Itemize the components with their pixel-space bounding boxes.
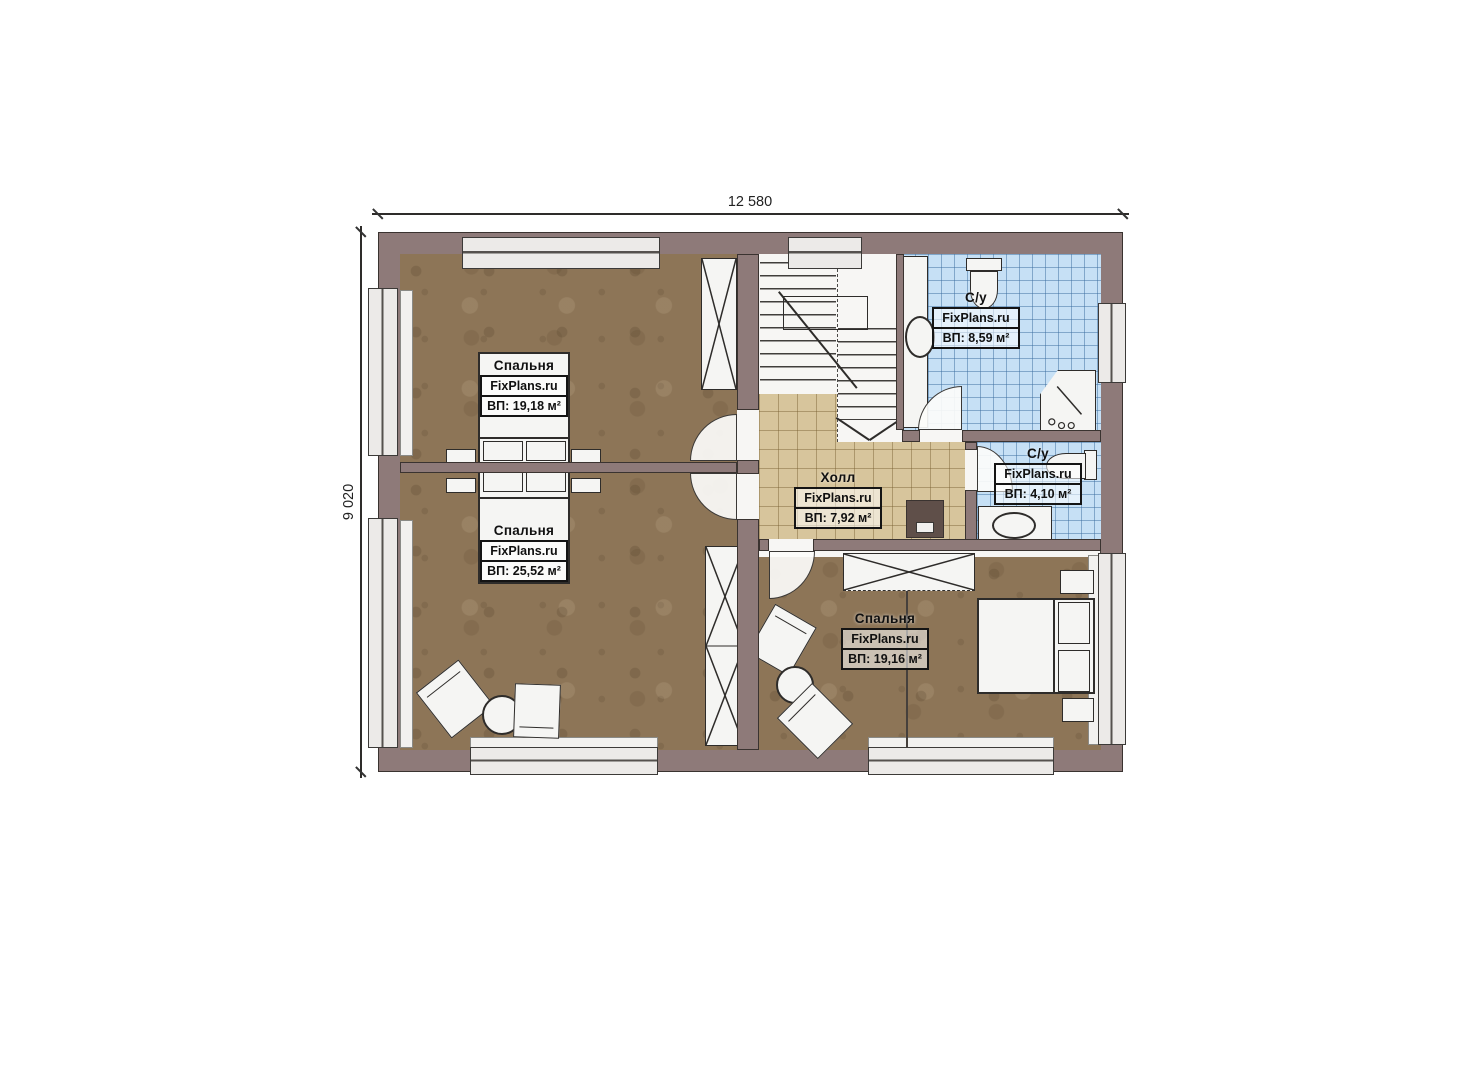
wardrobe (701, 258, 737, 390)
window (1098, 553, 1126, 745)
pillow (1058, 602, 1090, 644)
room-name: С/у (965, 290, 987, 305)
room-label-bedroom-br: Спальня FixPlans.ru ВП: 19,16 м² (841, 611, 929, 670)
room-name: Спальня (855, 611, 915, 626)
door-opening (737, 474, 759, 519)
wardrobe-sliding (843, 553, 975, 591)
room-label-bathroom-main: С/у FixPlans.ru ВП: 8,59 м² (932, 290, 1020, 349)
door-opening (920, 430, 962, 442)
wall-stair-bath (896, 254, 904, 430)
brand-tag: FixPlans.ru (841, 628, 929, 650)
room-area: ВП: 7,92 м² (794, 507, 882, 529)
wall-center-upper (737, 254, 759, 410)
dimension-line-left (360, 226, 362, 778)
dimension-width-label: 12 580 (728, 194, 772, 210)
room-name: Спальня (494, 523, 554, 538)
brand-tag: FixPlans.ru (480, 540, 568, 562)
brand-tag: FixPlans.ru (994, 463, 1082, 485)
floor-plan-canvas: 12 580 9 020 (0, 0, 1473, 1080)
room-area: ВП: 19,18 м² (480, 395, 568, 417)
pillow (526, 472, 566, 492)
window (368, 288, 398, 456)
pillow (1058, 650, 1090, 692)
toilet-tank (966, 258, 1002, 271)
window (462, 237, 660, 269)
bed-blanket-line (1053, 599, 1055, 693)
wall-hall-bath2 (965, 490, 977, 543)
brand-tag: FixPlans.ru (480, 375, 568, 397)
nightstand (1062, 698, 1094, 722)
wall-hall-bottom (813, 539, 1101, 551)
armchair (513, 683, 561, 739)
door-opening (769, 539, 813, 551)
room-label-bedroom-bl: Спальня FixPlans.ru ВП: 25,52 м² (480, 523, 568, 582)
wall-center-stub (737, 460, 759, 474)
room-name: Спальня (494, 358, 554, 373)
wall-center-lower (737, 519, 759, 750)
wall-hall-bottom (759, 539, 769, 551)
window-sill (400, 290, 413, 456)
room-label-bedroom-tl: Спальня FixPlans.ru ВП: 19,18 м² (480, 358, 568, 417)
room-area: ВП: 25,52 м² (480, 560, 568, 582)
stair-handrail (783, 296, 868, 330)
room-name: Холл (820, 470, 855, 485)
dimension-line-top (372, 213, 1129, 215)
nightstand (571, 478, 601, 493)
sink-basin (992, 512, 1036, 539)
door-opening (965, 450, 977, 490)
window (868, 747, 1054, 775)
wall-bath-split (902, 430, 920, 442)
bed-blanket-line (479, 497, 569, 499)
nightstand (446, 478, 476, 493)
brand-tag: FixPlans.ru (794, 487, 882, 509)
wall-hall-bath2 (965, 442, 977, 450)
nightstand (1060, 570, 1094, 594)
wall-bath-split (962, 430, 1101, 442)
wall-bedroom-partition (400, 462, 737, 473)
window (1098, 303, 1126, 383)
pillow (526, 441, 566, 461)
bed-blanket-line (479, 437, 569, 439)
window (470, 747, 658, 775)
room-area: ВП: 8,59 м² (932, 327, 1020, 349)
brand-tag: FixPlans.ru (932, 307, 1020, 329)
room-name: С/у (1027, 446, 1049, 461)
door-opening (737, 410, 759, 460)
room-area: ВП: 4,10 м² (994, 483, 1082, 505)
window (368, 518, 398, 748)
room-area: ВП: 19,16 м² (841, 648, 929, 670)
pillow (483, 441, 523, 461)
window (788, 237, 862, 269)
duct-shaft (906, 500, 944, 538)
dimension-height-label: 9 020 (341, 484, 357, 520)
window-sill (400, 520, 413, 748)
pillow (483, 472, 523, 492)
room-label-bathroom-small: С/у FixPlans.ru ВП: 4,10 м² (994, 446, 1082, 505)
room-label-hall: Холл FixPlans.ru ВП: 7,92 м² (794, 470, 882, 529)
sink-basin (905, 316, 935, 358)
stair-flight-divider (837, 254, 838, 442)
